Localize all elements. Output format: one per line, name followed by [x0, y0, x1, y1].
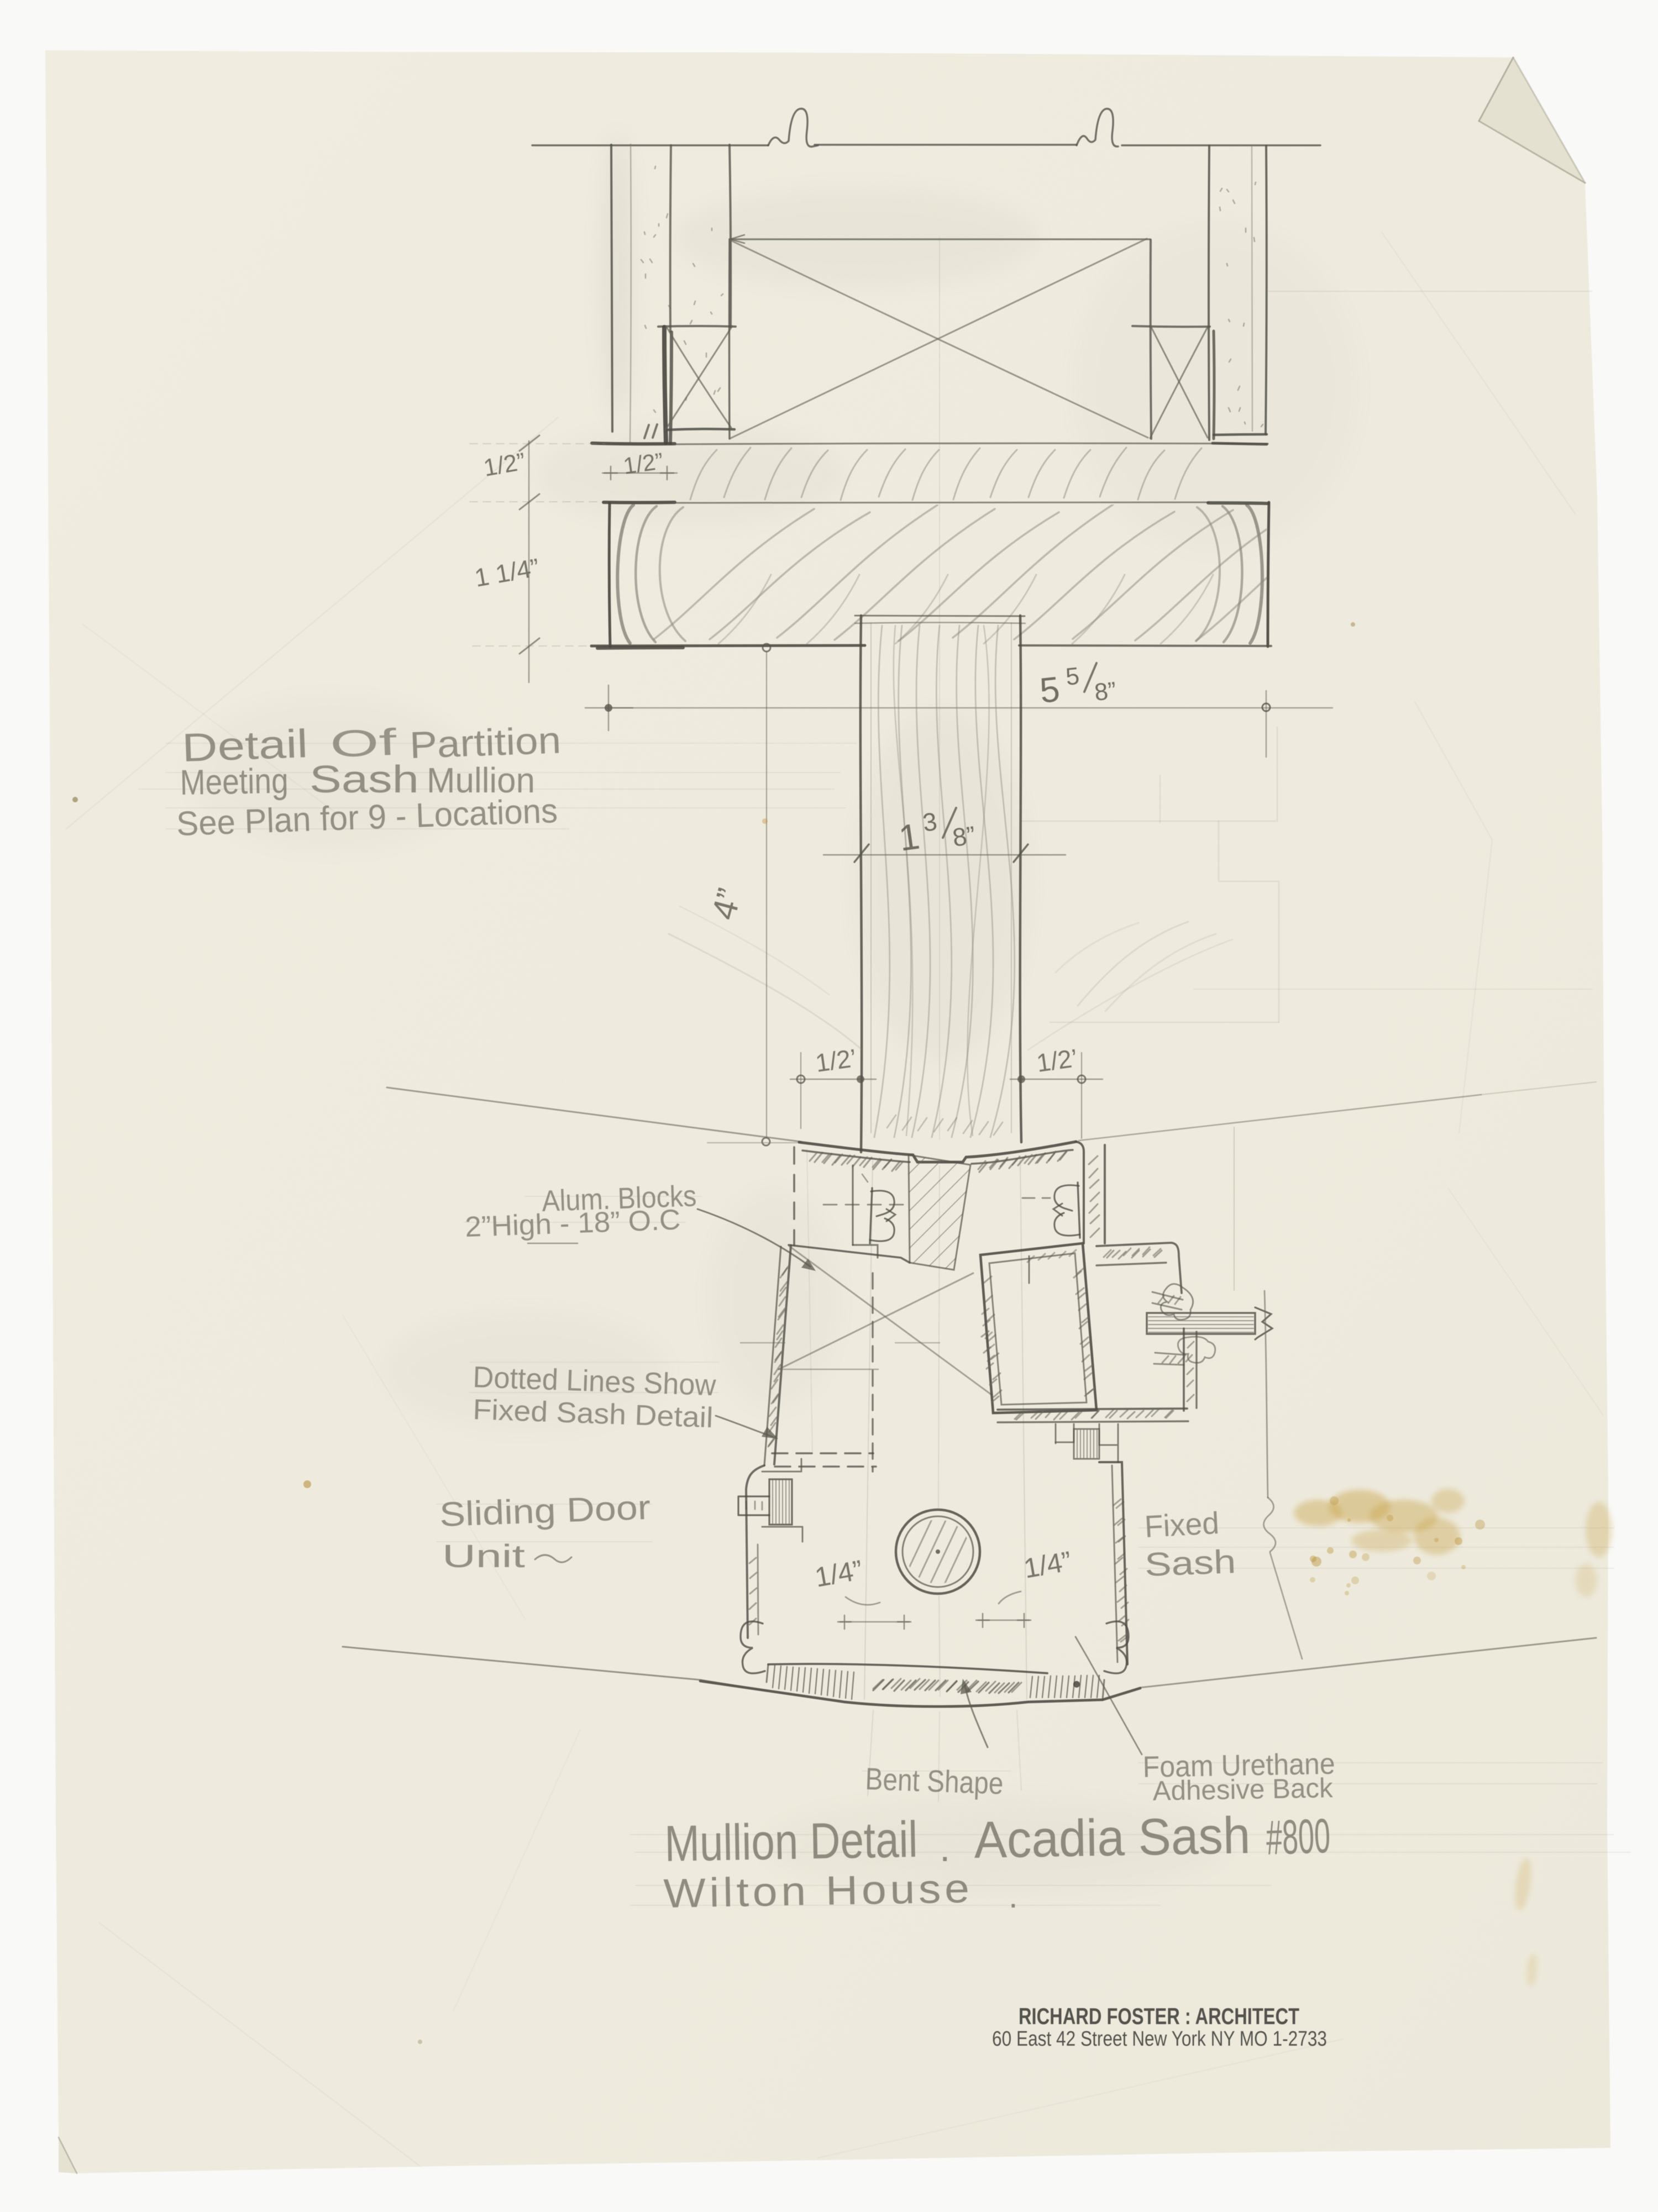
svg-text:.: .	[1009, 1878, 1018, 1915]
svg-text:Sash: Sash	[1144, 1543, 1236, 1583]
svg-text:5: 5	[1038, 669, 1062, 711]
svg-text:Meeting: Meeting	[180, 761, 288, 802]
svg-text:1/2”: 1/2”	[622, 448, 665, 479]
svg-text:Adhesive Back: Adhesive Back	[1152, 1772, 1334, 1806]
svg-text:#800: #800	[1265, 1808, 1331, 1865]
svg-text:60 East 42 Street New York NY: 60 East 42 Street New York NY MO 1-2733	[992, 2027, 1327, 2051]
svg-text:Wilton House: Wilton House	[663, 1865, 973, 1916]
svg-text:5: 5	[1064, 663, 1080, 691]
svg-text:Acadia Sash: Acadia Sash	[974, 1806, 1251, 1869]
svg-text:8”: 8”	[951, 821, 977, 852]
svg-text:Sliding Door: Sliding Door	[439, 1489, 651, 1534]
svg-text:Mullion Detail: Mullion Detail	[664, 1811, 919, 1872]
svg-text:Partition: Partition	[409, 719, 562, 766]
svg-text:1/2’: 1/2’	[1035, 1043, 1079, 1078]
svg-text:8”: 8”	[1093, 677, 1117, 706]
svg-text:RICHARD FOSTER : ARCHITECT: RICHARD FOSTER : ARCHITECT	[1019, 2003, 1299, 2029]
svg-text:1/2’: 1/2’	[814, 1043, 858, 1078]
svg-text:Sash: Sash	[309, 758, 419, 801]
svg-text:Unit: Unit	[442, 1538, 525, 1574]
svg-text:.: .	[940, 1826, 950, 1869]
svg-text:Bent Shape: Bent Shape	[865, 1761, 1004, 1801]
svg-text:Fixed: Fixed	[1143, 1505, 1220, 1544]
